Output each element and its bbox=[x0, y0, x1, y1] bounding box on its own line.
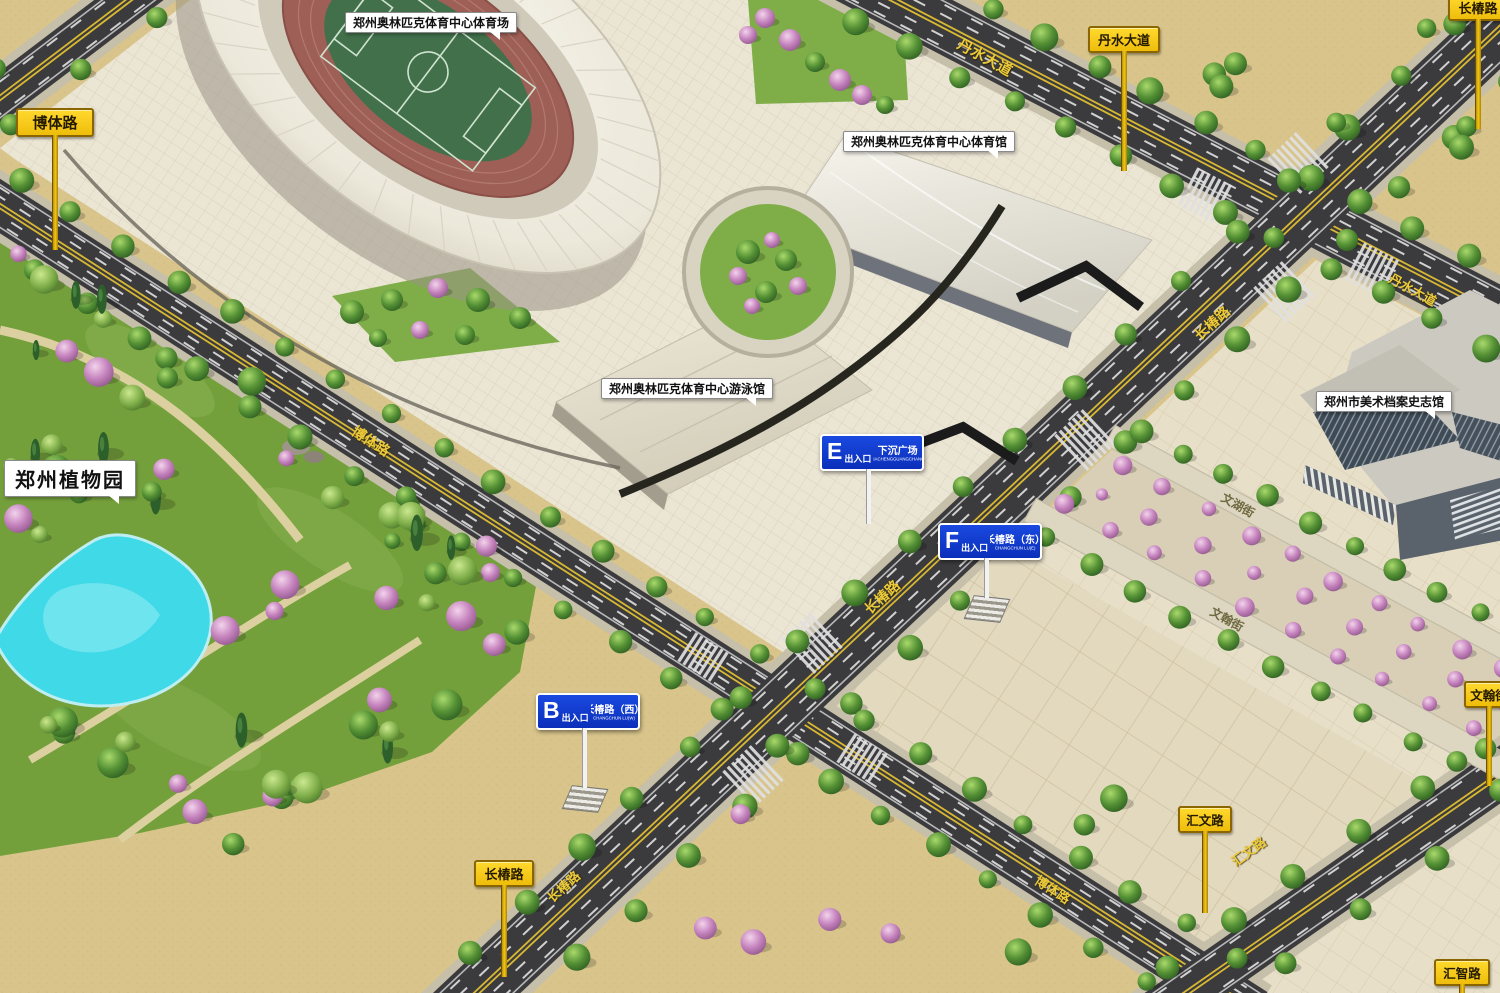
entrance-pinyin: CHANGCHUN LU(E) bbox=[995, 547, 1036, 551]
sign-pole bbox=[1121, 51, 1127, 171]
sign-pole bbox=[1202, 831, 1208, 913]
road-surface-label: 长椿路 bbox=[1190, 302, 1235, 345]
road-sign-botilu-nw: 博体路 bbox=[16, 108, 94, 137]
road-surface-label: 文翰街 bbox=[1207, 603, 1247, 635]
entrance-letter: E bbox=[822, 436, 843, 469]
sign-pole bbox=[52, 135, 58, 250]
entrance-letter: F bbox=[940, 525, 960, 558]
road-sign-huiwen: 汇文路 bbox=[1178, 806, 1232, 833]
entrance-pinyin: CHANGCHUN LU(W) bbox=[593, 717, 635, 721]
entrance-label: 出入口 bbox=[561, 711, 591, 728]
road-surface-label: 长椿路 bbox=[542, 866, 584, 906]
entrance-sign-F: F出入口长椿路（东）CHANGCHUN LU(E) bbox=[938, 523, 1042, 560]
road-surface-label: 丹水大道 bbox=[954, 33, 1017, 80]
place-label-botanical-garden: 郑州植物园 bbox=[4, 460, 136, 497]
road-sign-text: 长椿路 bbox=[1458, 1, 1497, 16]
road-surface-label: 博体路 bbox=[348, 421, 394, 461]
road-sign-text: 丹水大道 bbox=[1098, 33, 1150, 48]
road-sign-danshui-n: 丹水大道 bbox=[1088, 26, 1160, 53]
road-surface-label: 文湖街 bbox=[1218, 489, 1258, 521]
sign-pole bbox=[501, 885, 507, 977]
road-surface-label: 博体路 bbox=[1031, 870, 1074, 907]
sign-pole bbox=[984, 558, 989, 598]
road-surface-label: 汇文路 bbox=[1227, 832, 1270, 870]
place-label-stadium: 郑州奥林匹克体育中心体育场 bbox=[345, 12, 517, 33]
entrance-pinyin: XIACHENGGUANGCHANG bbox=[873, 458, 922, 462]
place-label-gymnasium: 郑州奥林匹克体育中心体育馆 bbox=[843, 131, 1015, 152]
entrance-label: 出入口 bbox=[843, 452, 873, 469]
road-sign-text: 文翰街 bbox=[1470, 689, 1500, 703]
road-sign-changchun-ne: 长椿路 bbox=[1448, 0, 1500, 21]
sign-pole bbox=[1475, 19, 1481, 129]
sign-pole bbox=[1459, 984, 1465, 993]
entrance-label: 出入口 bbox=[960, 541, 990, 558]
place-label-natatorium: 郑州奥林匹克体育中心游泳馆 bbox=[601, 378, 773, 399]
sign-pole bbox=[1486, 706, 1492, 786]
map-canvas[interactable]: 郑州奥林匹克体育中心体育场郑州奥林匹克体育中心体育馆郑州奥林匹克体育中心游泳馆郑… bbox=[0, 0, 1500, 993]
entrance-stairs bbox=[964, 595, 1011, 623]
road-surface-label: 丹水大道 bbox=[1386, 268, 1441, 310]
road-sign-text: 汇文路 bbox=[1186, 814, 1224, 828]
road-sign-text: 博体路 bbox=[32, 115, 77, 132]
road-sign-text: 汇智路 bbox=[1443, 967, 1481, 981]
entrance-road-name: 下沉广场 bbox=[878, 442, 918, 457]
sign-pole bbox=[866, 469, 871, 524]
entrance-sign-E: E出入口下沉广场XIACHENGGUANGCHANG bbox=[820, 434, 924, 471]
entrance-letter: B bbox=[538, 695, 561, 728]
road-sign-wenhan-e: 文翰街 bbox=[1464, 681, 1500, 708]
sign-pole bbox=[582, 728, 587, 788]
entrance-road-name: 长椿路（东） bbox=[990, 531, 1040, 546]
entrance-sign-B: B出入口长椿路（西）CHANGCHUN LU(W) bbox=[536, 693, 640, 730]
road-sign-changchun-sw: 长椿路 bbox=[474, 860, 534, 887]
entrance-stairs bbox=[562, 785, 609, 813]
labels-layer: 郑州奥林匹克体育中心体育场郑州奥林匹克体育中心体育馆郑州奥林匹克体育中心游泳馆郑… bbox=[0, 0, 1500, 993]
road-sign-huizhi: 汇智路 bbox=[1434, 959, 1490, 986]
place-label-museum: 郑州市美术档案史志馆 bbox=[1316, 391, 1452, 412]
entrance-road-name: 长椿路（西） bbox=[591, 701, 638, 716]
road-surface-label: 长椿路 bbox=[860, 576, 905, 619]
road-sign-text: 长椿路 bbox=[484, 867, 523, 882]
